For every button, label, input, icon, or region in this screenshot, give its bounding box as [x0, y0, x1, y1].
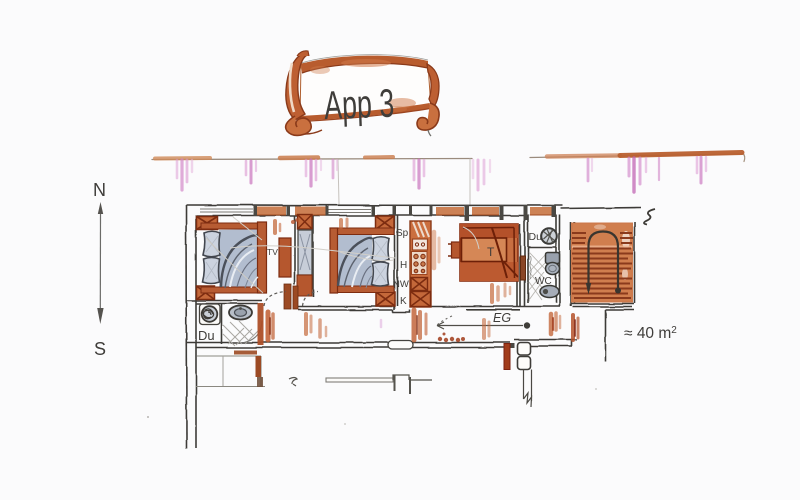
- svg-text:≈ 40 m2: ≈ 40 m2: [624, 325, 677, 342]
- svg-text:Du: Du: [529, 231, 543, 243]
- svg-text:Sp: Sp: [396, 228, 409, 239]
- svg-text:EG: EG: [493, 311, 511, 325]
- svg-text:T: T: [487, 245, 495, 259]
- svg-text:NW: NW: [393, 279, 409, 290]
- svg-text:K: K: [400, 296, 407, 307]
- svg-text:H: H: [400, 260, 407, 271]
- svg-text:App 3: App 3: [323, 82, 394, 128]
- svg-text:S: S: [94, 339, 106, 359]
- svg-text:TV: TV: [267, 247, 278, 257]
- svg-text:Du: Du: [198, 328, 215, 343]
- svg-text:N: N: [93, 180, 106, 200]
